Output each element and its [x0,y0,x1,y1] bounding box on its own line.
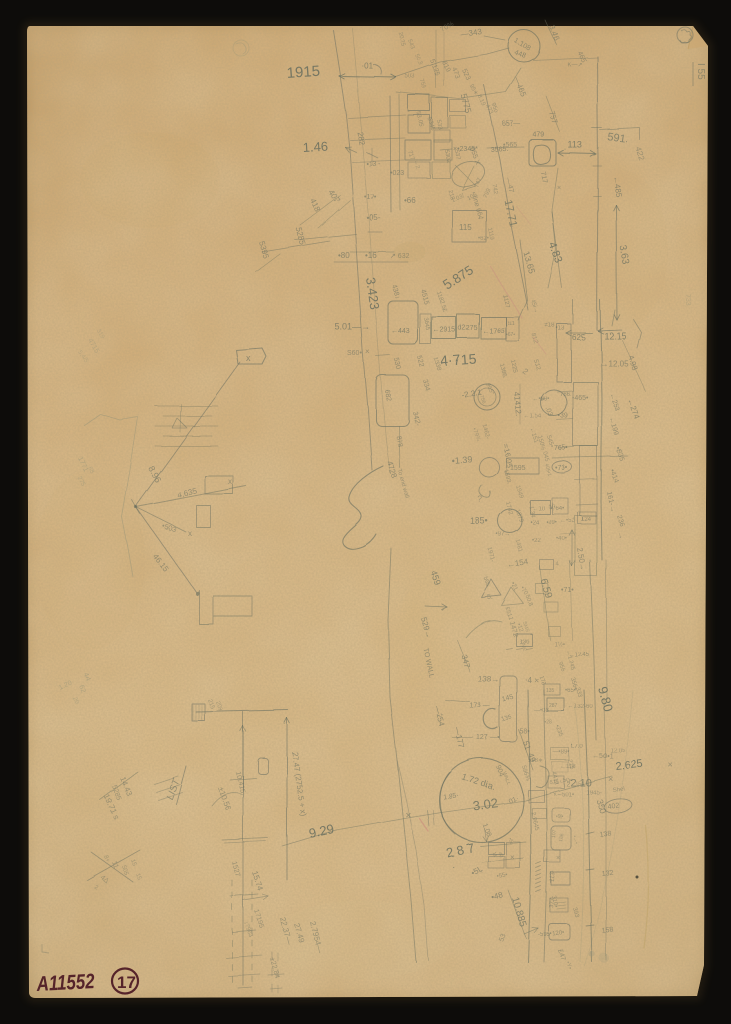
svg-text:←•52: ←•52 [560,518,575,524]
svg-text:•66: •66 [404,196,416,205]
svg-text:•023: •023 [390,170,404,177]
svg-text:124: 124 [581,517,592,523]
svg-text:765•: 765• [554,445,569,452]
svg-text:•62•: •62• [478,236,489,242]
svg-text:≠18: ≠18 [545,323,556,329]
svg-text:•67•: •67• [506,332,515,338]
svg-text:377: 377 [549,897,556,908]
svg-text:→12.05: →12.05 [600,359,629,368]
svg-text:?: ? [478,495,483,504]
svg-text:•28: •28 [545,720,553,726]
svg-text:479: 479 [533,132,545,139]
svg-text:135: 135 [546,688,555,694]
svg-text:⋅4 ×: ⋅4 × [525,676,539,685]
svg-text:598∗: 598∗ [528,758,543,764]
svg-text:•80: •80 [338,251,350,260]
svg-text:←443: ←443 [391,328,410,335]
svg-text:733: 733 [684,294,691,306]
svg-text:←118: ←118 [560,764,576,770]
svg-text:503: 503 [405,74,416,80]
svg-text:←50•1: ←50•1 [592,753,613,760]
svg-text:·: · [452,862,455,873]
svg-text:-465•: -465• [572,395,589,402]
svg-text:×: × [510,853,515,862]
svg-text:x: x [188,529,192,538]
svg-text:786.: 786. [560,392,572,398]
svg-text:x: x [246,353,251,363]
svg-text:×•2345*: ×•2345* [453,146,478,153]
svg-text:12.15: 12.15 [604,331,627,341]
svg-text:•565: •565 [503,142,517,149]
svg-text:K—↗: K—↗ [567,62,582,68]
svg-text:136: 136 [519,639,530,645]
svg-text:1945-: 1945- [586,790,601,796]
svg-text:127 —•: 127 —• [477,735,501,742]
svg-text:•71•: •71• [561,587,574,594]
svg-text:17: 17 [117,973,136,992]
svg-text:575: 575 [550,780,559,786]
svg-text:•1.39: •1.39 [451,454,472,466]
svg-text:625: 625 [572,333,586,342]
svg-text:113-: 113- [550,870,556,882]
svg-text:x: x [228,477,232,486]
svg-text:×∼501•: ×∼501• [553,792,574,798]
svg-text:×: × [668,760,673,770]
svg-text:×: × [405,810,411,821]
svg-text:1½•: 1½• [554,641,564,648]
svg-text:107: 107 [551,829,558,838]
svg-text:4·715: 4·715 [440,351,477,369]
svg-text:S60•: S60• [348,351,363,358]
svg-text:×: × [556,855,560,862]
svg-text:•13 -: •13 - [366,161,381,168]
svg-text:•1ʔ•: •1ʔ• [364,194,377,201]
svg-text:ḋ2275: ḋ2275 [458,325,478,332]
svg-text:138→: 138→ [478,675,499,684]
svg-text:657—: 657— [502,121,521,128]
svg-text:•22: •22 [532,538,541,544]
svg-text:12.05: 12.05 [610,748,626,754]
svg-text:←1765: ←1765 [482,328,505,335]
svg-text:•73•: •73• [555,465,568,472]
svg-text:•9ļ•: •9ļ• [556,814,564,820]
svg-text:L7.0: L7.0 [571,744,583,750]
svg-text:×: × [366,348,371,357]
svg-text:-595•: -595• [538,932,552,938]
svg-text:×: × [608,774,613,784]
svg-text:A11552: A11552 [35,970,95,996]
svg-text:—•89•: —•89• [553,750,570,756]
svg-text:•24: •24 [530,520,539,526]
svg-text:185•: 185• [470,516,488,526]
svg-text:•05-: •05- [366,213,381,222]
svg-text:→: → [616,531,626,540]
svg-text:←2915: ←2915 [433,327,456,334]
svg-text:←132-60: ←132-60 [568,704,593,710]
svg-text:•49•: •49• [546,520,557,526]
svg-text:•764•: •764• [550,506,564,512]
svg-text:•16: •16 [365,251,377,260]
svg-text:287: 287 [549,703,558,709]
svg-text:I 55: I 55 [695,63,706,80]
svg-text:1.46: 1.46 [302,139,328,155]
svg-text:1915: 1915 [286,63,320,82]
svg-text:—•03: —•03 [534,708,549,714]
svg-text:←1.54: ←1.54 [524,414,542,420]
svg-text:•97→: •97→ [496,532,511,538]
svg-text:5.: 5. [488,595,494,602]
svg-text:173 —: 173 — [470,703,491,710]
svg-text:111: 111 [507,321,515,327]
svg-text:115: 115 [459,223,472,232]
svg-text:2.10: 2.10 [570,777,591,789]
svg-text:×: × [557,185,561,192]
svg-text:•40•: •40• [556,536,567,542]
svg-text:·01: ·01 [361,61,373,70]
svg-text:5.01—→: 5.01—→ [335,322,371,332]
svg-text:•39: •39 [558,413,568,420]
